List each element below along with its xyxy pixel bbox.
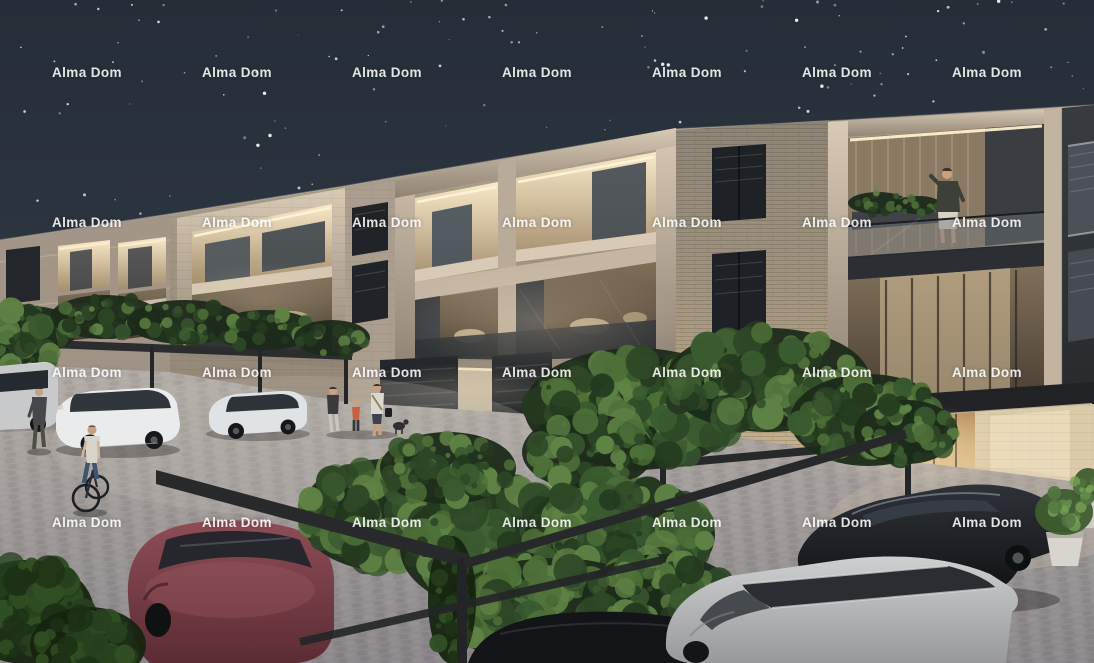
window <box>1068 248 1094 342</box>
parked-car-partial <box>0 362 58 432</box>
window <box>1068 142 1094 236</box>
white-suv <box>56 388 180 458</box>
architectural-night-render: Alma DomAlma DomAlma DomAlma DomAlma Dom… <box>0 0 1094 663</box>
render-scene <box>0 0 1094 663</box>
window <box>712 144 766 222</box>
